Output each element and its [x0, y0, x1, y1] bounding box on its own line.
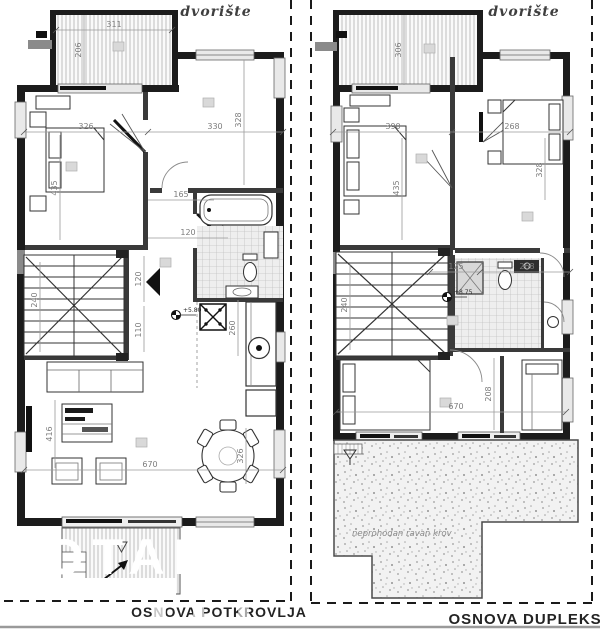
right-stairs — [336, 248, 450, 360]
dim-r-bed1-d: 435 — [392, 180, 401, 195]
dim-bath-w: 165 — [173, 190, 188, 199]
dim-kitchen-d: 260 — [228, 320, 237, 335]
left-dining-table — [197, 420, 260, 492]
dim-stairs-w: 120 — [134, 271, 143, 286]
dim-terrace-d: 206 — [74, 42, 83, 57]
dim-flight: 110 — [134, 322, 143, 337]
right-bottom-rooms — [340, 360, 562, 430]
dim-hall-w: 120 — [180, 228, 195, 237]
left-yard-label: dvorište — [180, 4, 251, 20]
dim-living-w: 670 — [142, 460, 157, 469]
left-bedroom-bed — [30, 96, 104, 211]
right-roof: neprohodan ravan krov — [334, 440, 578, 598]
roof-label: neprohodan ravan krov — [352, 529, 453, 539]
dim-living-d: 416 — [45, 426, 54, 441]
dim-dining-d: 326 — [236, 448, 245, 463]
left-level-text: +5.80 — [183, 307, 202, 314]
dim-bed1-d: 435 — [50, 180, 59, 195]
dim-room2-d: 328 — [234, 112, 243, 127]
dim-r-bed1-w: 390 — [385, 122, 400, 131]
left-bathroom — [197, 195, 283, 298]
floorplan-sheet: +5.80 311 206 326 330 328 — [0, 0, 600, 633]
dim-stairs-d: 240 — [30, 292, 39, 307]
dim-r-hall-w: 125 — [448, 262, 463, 271]
dim-r-room3-d: 208 — [484, 386, 493, 401]
dim-r-bed2-w: 268 — [504, 122, 519, 131]
right-caption: OSNOVA DUPLEKSA — [448, 611, 600, 628]
dim-r-bath-w: 268 — [519, 262, 534, 271]
dim-bed1-w: 326 — [78, 122, 93, 131]
dim-r-bed2-d: 328 — [535, 162, 544, 177]
dim-r-terrace-d: 306 — [394, 42, 403, 57]
right-yard-label: dvorište — [488, 4, 559, 20]
left-level-marker: +5.80 — [172, 307, 202, 320]
dim-r-stairs-d: 240 — [340, 297, 349, 312]
right-plan: neprohodan ravan krov +8.75 — [315, 4, 600, 628]
left-living — [26, 362, 143, 484]
floorplan-drawing: +5.80 311 206 326 330 328 — [0, 0, 600, 633]
dim-r-living-w: 670 — [448, 402, 463, 411]
dim-terrace-w: 311 — [106, 20, 121, 29]
left-plan: +5.80 311 206 326 330 328 — [15, 4, 307, 620]
left-terrace — [28, 10, 178, 92]
watermark-text: TOTAL — [6, 529, 213, 585]
left-kitchen — [197, 302, 276, 416]
dim-room2-w: 330 — [207, 122, 222, 131]
right-level-text: +8.75 — [454, 289, 473, 296]
